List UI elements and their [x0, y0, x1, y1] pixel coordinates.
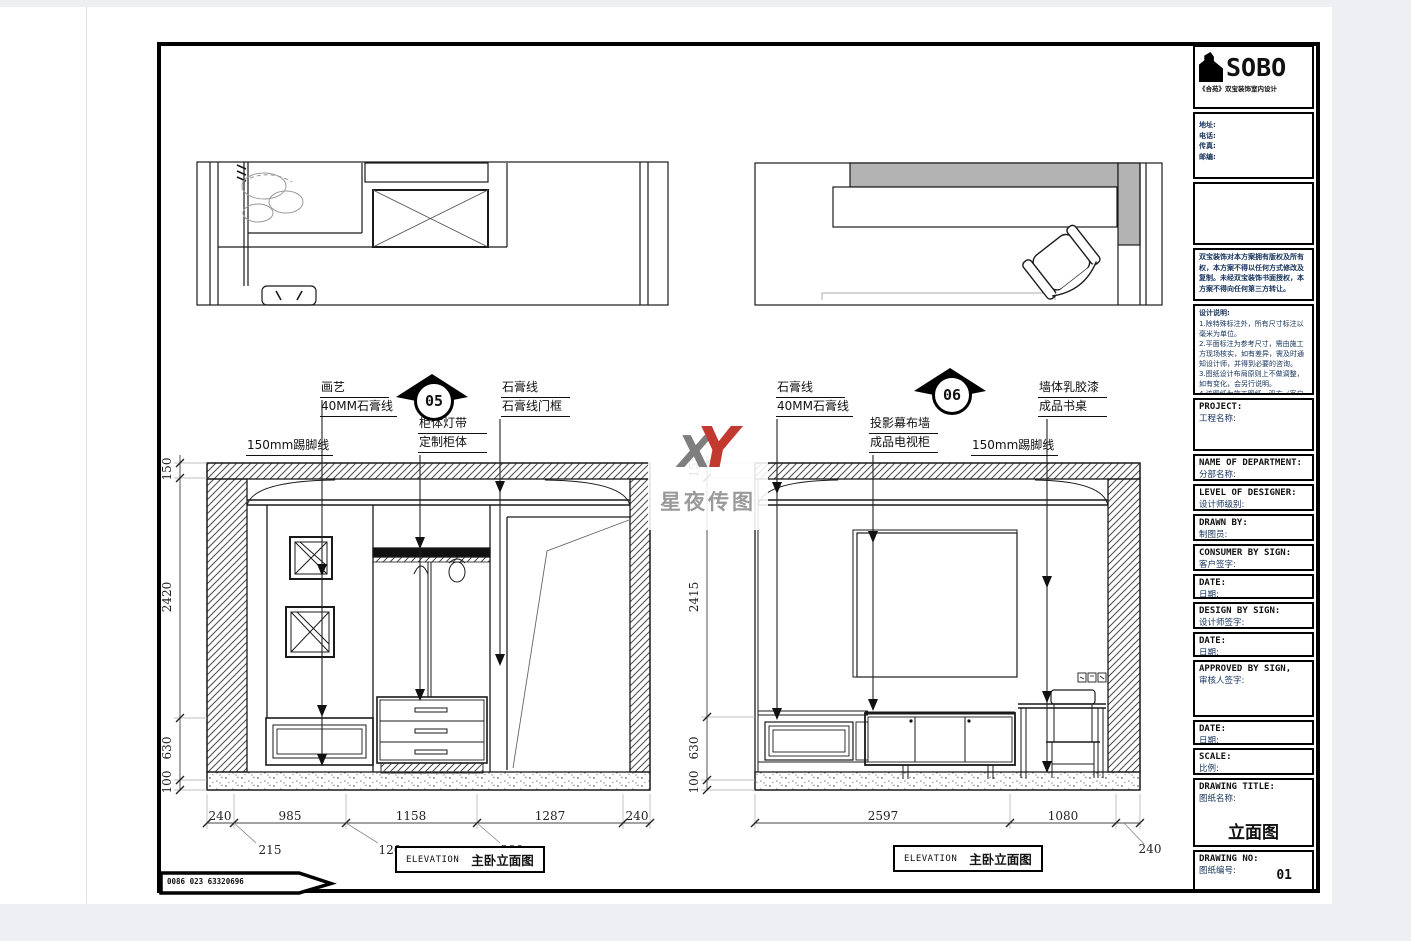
field-label-cn: 图纸名称: — [1199, 792, 1308, 804]
field-label-cn: 日期: — [1199, 646, 1308, 657]
field-label-cn: 设计师级别: — [1199, 498, 1308, 510]
field-label-en: DATE: — [1199, 578, 1308, 588]
note-item: 3.图纸设计布局原则上不做调整，如有变化，会另行说明。 — [1199, 369, 1308, 389]
field-consumer-sign: CONSUMER BY SIGN: 客户签字: — [1193, 544, 1314, 571]
note-item: 1.除特殊标注外，所有尺寸标注以毫米为单位。 — [1199, 319, 1308, 339]
dim-text: 150 — [160, 458, 174, 481]
left-elevation-caption: ELEVATION 主卧立面图 — [395, 846, 545, 873]
sobo-building-icon — [1199, 52, 1223, 82]
drawing-title-value: 立面图 — [1199, 818, 1308, 843]
label-line: 40MM石膏线 — [320, 398, 397, 417]
dim-text: 100 — [687, 771, 701, 794]
field-label-en: LEVEL OF DESIGNER: — [1199, 488, 1308, 498]
label-skirting-right: 150mm踢脚线 — [971, 437, 1058, 456]
note-item: 4.该图纸为施工图纸，双方（客户和设计师）签字认可后，方可指导施工。 — [1199, 389, 1308, 396]
field-label-en: DATE: — [1199, 724, 1308, 734]
dim-text: 1158 — [396, 809, 427, 823]
caption-cn: 主卧立面图 — [471, 850, 534, 869]
field-label-en: DRAWING NO: — [1199, 854, 1308, 864]
section-marker-05: 05 — [414, 381, 454, 421]
field-drawn-by: DRAWN BY: 制图员: — [1193, 514, 1314, 541]
label-line: 150mm踢脚线 — [971, 437, 1058, 456]
titleblock-empty-box — [1193, 182, 1314, 245]
dim-text: 240 — [209, 809, 232, 823]
label-projection: 投影幕布墙 成品电视柜 — [869, 415, 938, 453]
field-scale: SCALE: 比例: — [1193, 748, 1314, 775]
caption-en: ELEVATION — [904, 854, 957, 864]
dim-text: 240 — [1139, 842, 1162, 856]
field-label-cn: 客户签字: — [1199, 558, 1308, 570]
label-gypsum-right: 石膏线 40MM石膏线 — [776, 379, 853, 417]
label-line: 40MM石膏线 — [776, 398, 853, 417]
field-label-en: DATE: — [1199, 636, 1308, 646]
dim-text: 1287 — [535, 809, 566, 823]
field-label-cn: 日期: — [1199, 734, 1308, 745]
label-wall-paint: 墙体乳胶漆 成品书桌 — [1038, 379, 1107, 417]
field-label-en: CONSUMER BY SIGN: — [1199, 548, 1308, 558]
titleblock-logo-box: SOBO 《合苑》双宝装饰室内设计 — [1193, 45, 1314, 109]
dim-text: 985 — [279, 809, 302, 823]
dim-text: 630 — [687, 737, 701, 760]
contact-line: 传真: — [1199, 141, 1308, 152]
dim-text: 100 — [160, 771, 174, 794]
copyright-text: 双宝装饰对本方案拥有版权及所有权，本方案不得以任何方式修改及复制。未经双宝装饰书… — [1199, 252, 1308, 294]
field-label-en: SCALE: — [1199, 752, 1308, 762]
field-label-cn: 分部名称: — [1199, 468, 1308, 480]
dim-text: 2597 — [868, 809, 899, 823]
dim-text: 215 — [259, 843, 282, 857]
field-label-cn: 日期: — [1199, 588, 1308, 599]
label-line: 石膏线 — [501, 379, 570, 398]
field-date-3: DATE: 日期: — [1193, 720, 1314, 745]
watermark-text: 星夜传图 — [660, 486, 756, 516]
label-line: 成品电视柜 — [869, 434, 938, 453]
field-label-en: NAME OF DEPARTMENT: — [1199, 458, 1308, 468]
contact-line: 电话: — [1199, 131, 1308, 142]
phone-number: 0086 023 63320696 — [167, 877, 244, 886]
notes-title: 设计说明: — [1199, 308, 1308, 319]
dim-text: 240 — [626, 809, 649, 823]
right-floor-plan — [755, 163, 1162, 305]
label-line: 投影幕布墙 — [869, 415, 938, 434]
label-art: 画艺 40MM石膏线 — [320, 379, 397, 417]
dim-text: 2420 — [160, 582, 174, 613]
label-line: 定制柜体 — [418, 434, 487, 453]
field-label-en: APPROVED BY SIGN, — [1199, 664, 1308, 674]
dim-text: 2415 — [687, 582, 701, 613]
dim-text: 1080 — [1048, 809, 1079, 823]
field-drawing-no: DRAWING NO: 图纸编号: 01 — [1193, 850, 1314, 891]
left-floor-plan — [197, 162, 668, 305]
brand-subtitle: 《合苑》双宝装饰室内设计 — [1199, 83, 1308, 93]
label-line: 150mm踢脚线 — [246, 437, 333, 456]
titleblock-copyright-box: 双宝装饰对本方案拥有版权及所有权，本方案不得以任何方式修改及复制。未经双宝装饰书… — [1193, 248, 1314, 301]
field-label-en: DESIGN BY SIGN: — [1199, 606, 1308, 616]
field-label-cn: 设计师签字: — [1199, 616, 1308, 628]
right-elevation-drawing — [755, 463, 1140, 790]
drawing-sheet: 画艺 40MM石膏线 柜体灯带 定制柜体 石膏线 石膏线门框 150mm踢脚线 … — [0, 0, 1411, 941]
note-item: 2.平面标注为参考尺寸，需由施工方现场核实，如有差异，需及时通知设计师，并得到必… — [1199, 339, 1308, 369]
field-date-2: DATE: 日期: — [1193, 632, 1314, 657]
caption-en: ELEVATION — [406, 855, 459, 865]
contact-line: 地址: — [1199, 120, 1308, 131]
plant-sketch — [242, 173, 303, 222]
field-label-cn: 比例: — [1199, 762, 1308, 774]
dim-text: 630 — [160, 737, 174, 760]
field-department: NAME OF DEPARTMENT: 分部名称: — [1193, 454, 1314, 481]
label-skirting-left: 150mm踢脚线 — [246, 437, 333, 456]
field-label-cn: 制图员: — [1199, 528, 1308, 540]
field-label-cn: 工程名称: — [1199, 412, 1308, 424]
titleblock-contact-box: 地址: 电话: 传真: 邮编: — [1193, 112, 1314, 179]
label-cabinet: 柜体灯带 定制柜体 — [418, 415, 487, 453]
right-elevation-caption: ELEVATION 主卧立面图 — [893, 845, 1043, 872]
field-drawing-title: DRAWING TITLE: 图纸名称: 立面图 — [1193, 778, 1314, 847]
field-project: PROJECT: 工程名称: — [1193, 398, 1314, 451]
field-label-en: DRAWN BY: — [1199, 518, 1308, 528]
field-date-1: DATE: 日期: — [1193, 574, 1314, 599]
drawing-no-value: 01 — [1276, 868, 1292, 883]
watermark-xy-logo: XY — [678, 427, 739, 484]
titleblock-notes-box: 设计说明: 1.除特殊标注外，所有尺寸标注以毫米为单位。 2.平面标注为参考尺寸… — [1193, 304, 1314, 395]
brand-name: SOBO — [1226, 53, 1286, 82]
label-line: 画艺 — [320, 379, 389, 398]
caption-cn: 主卧立面图 — [969, 849, 1032, 868]
label-gypsum-left: 石膏线 石膏线门框 — [501, 379, 570, 417]
field-design-sign: DESIGN BY SIGN: 设计师签字: — [1193, 602, 1314, 629]
field-label-en: PROJECT: — [1199, 402, 1308, 412]
watermark: XY 星夜传图 — [648, 412, 768, 530]
label-line: 石膏线 — [776, 379, 845, 398]
label-line: 石膏线门框 — [501, 398, 570, 417]
field-level: LEVEL OF DESIGNER: 设计师级别: — [1193, 484, 1314, 511]
left-elevation-drawing — [207, 463, 650, 790]
watermark-y: Y — [698, 416, 739, 481]
label-line: 成品书桌 — [1038, 398, 1107, 417]
contact-line: 邮编: — [1199, 152, 1308, 163]
field-approved-sign: APPROVED BY SIGN, 审核人签字: — [1193, 660, 1314, 717]
label-line: 墙体乳胶漆 — [1038, 379, 1107, 398]
field-label-cn: 审核人签字: — [1199, 674, 1308, 686]
field-label-en: DRAWING TITLE: — [1199, 782, 1308, 792]
section-marker-06: 06 — [932, 375, 972, 415]
